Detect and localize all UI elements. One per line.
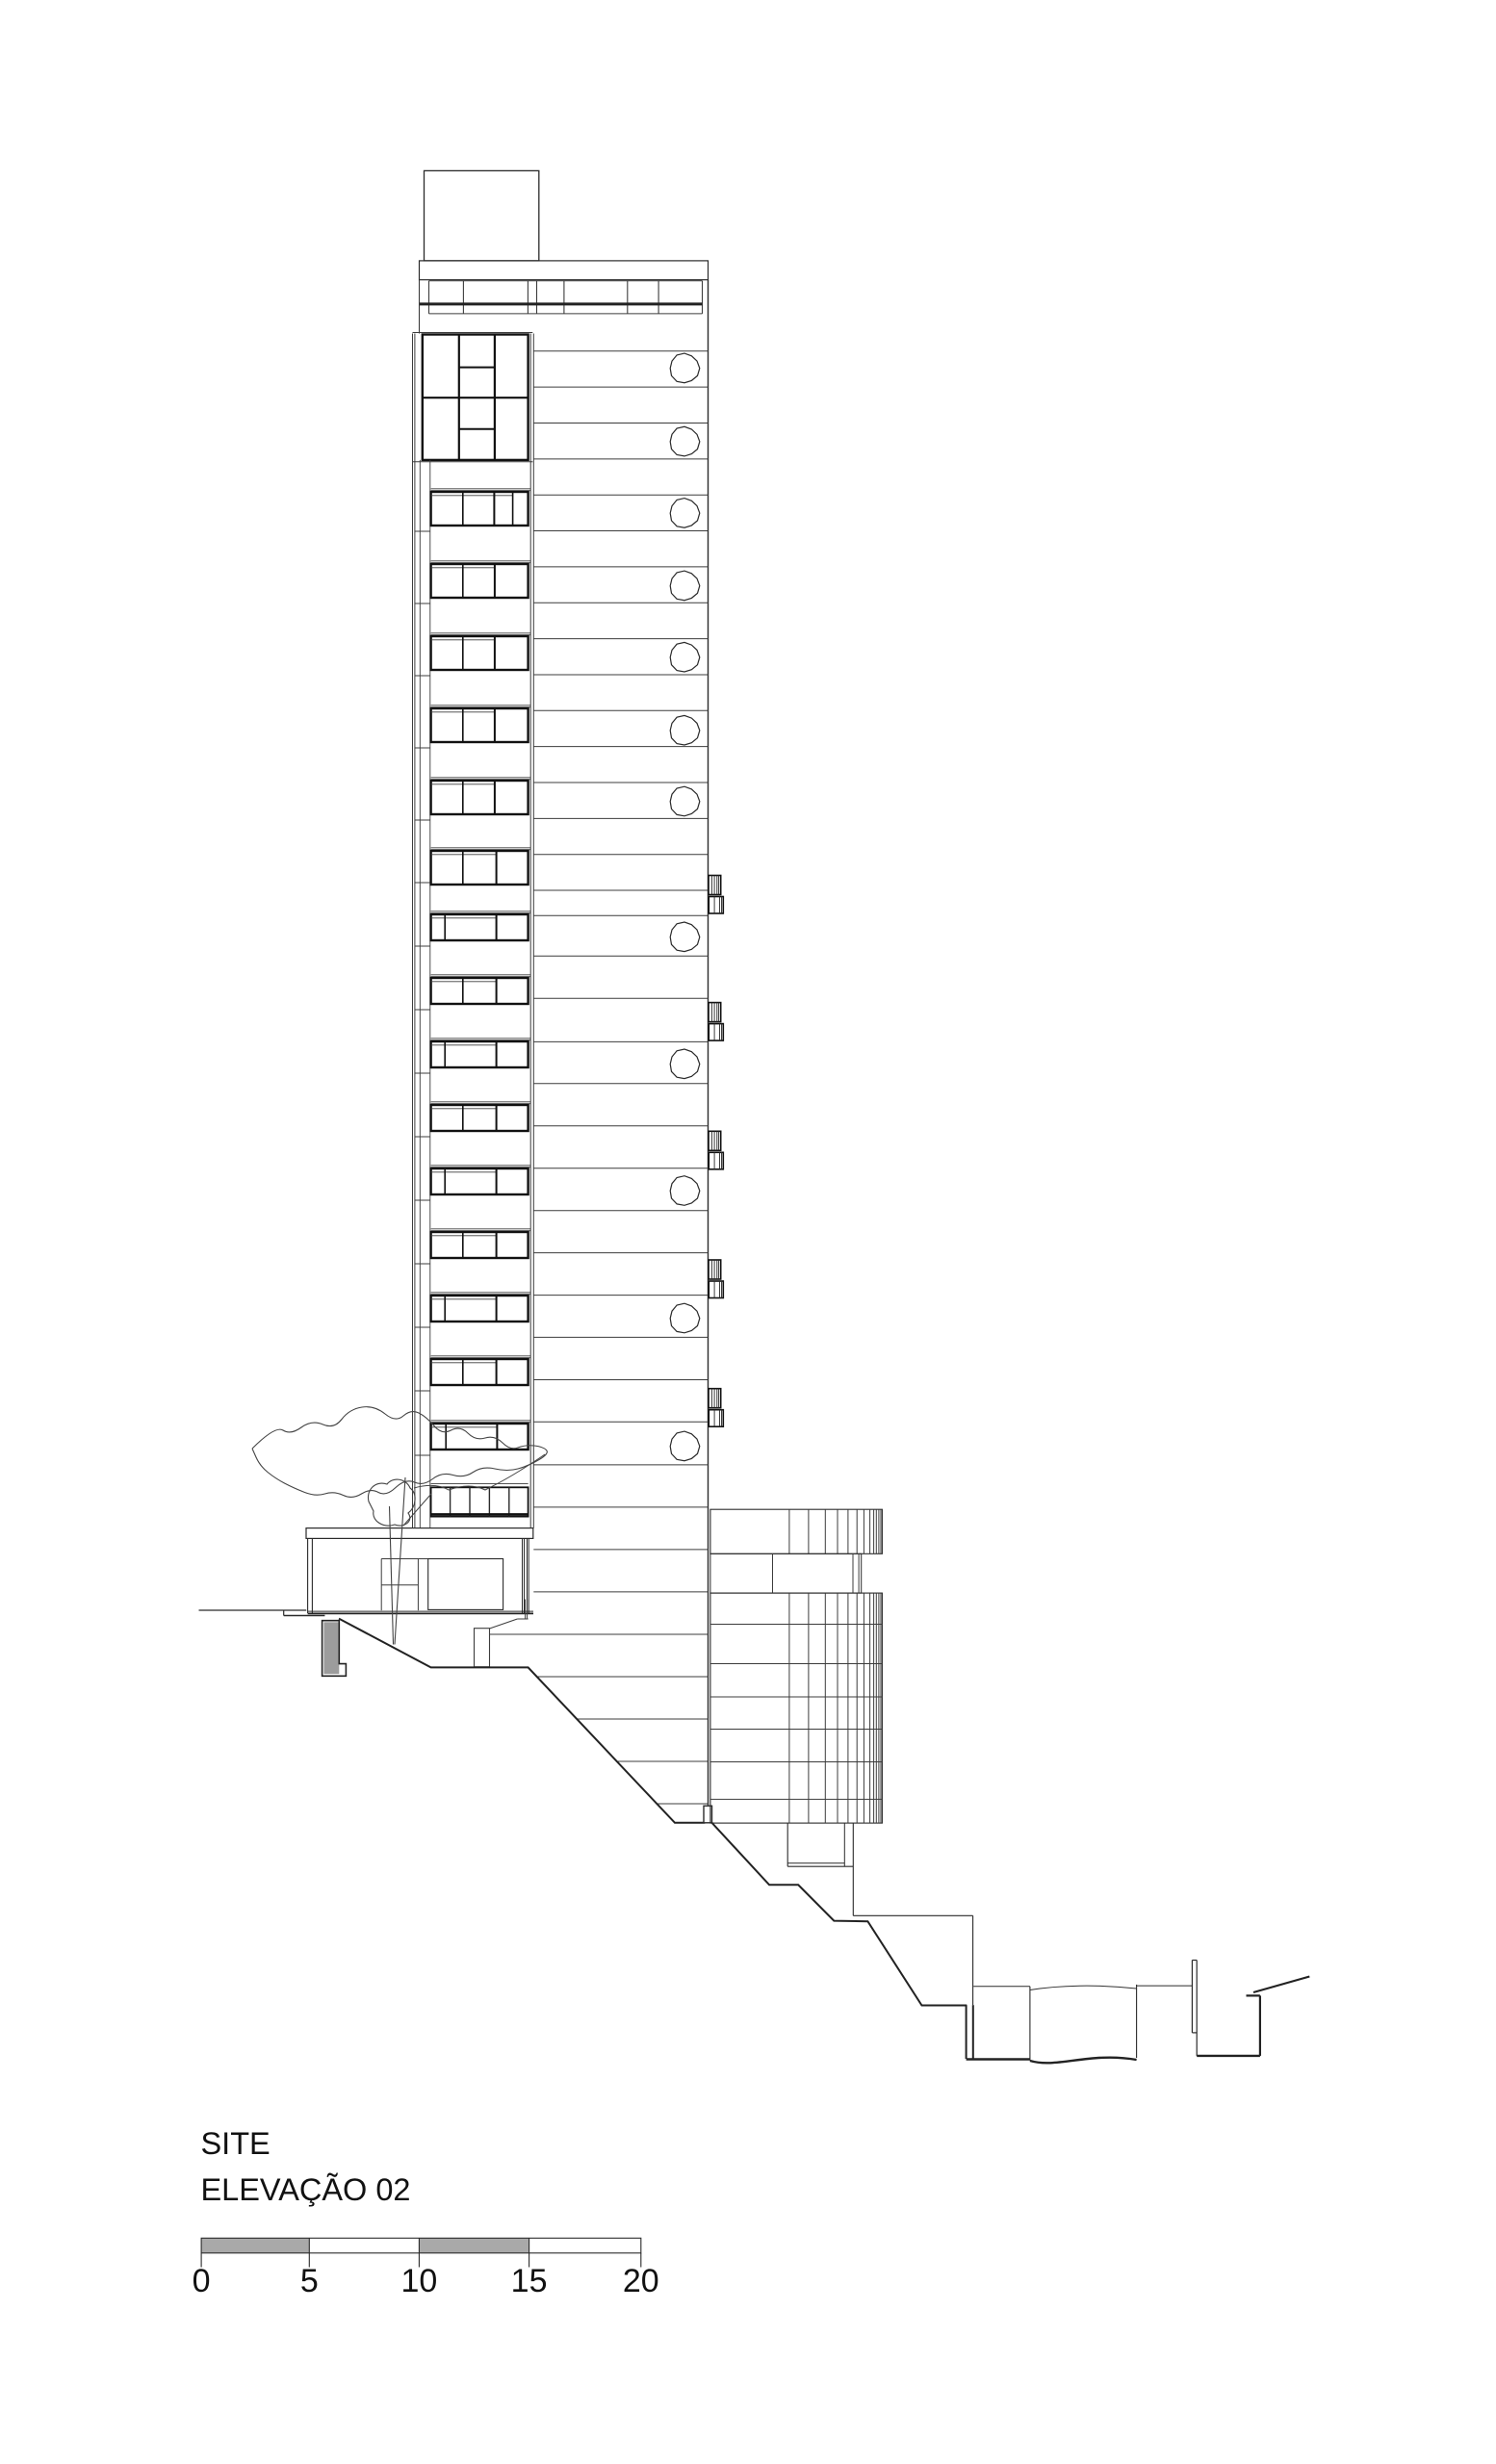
svg-text:15: 15 [511,2263,548,2299]
svg-text:5: 5 [300,2263,319,2299]
svg-text:20: 20 [623,2263,659,2299]
svg-text:10: 10 [400,2263,437,2299]
svg-text:0: 0 [193,2263,211,2299]
svg-text:ELEVAÇÃO 02: ELEVAÇÃO 02 [201,2171,411,2207]
svg-text:SITE: SITE [201,2126,271,2161]
